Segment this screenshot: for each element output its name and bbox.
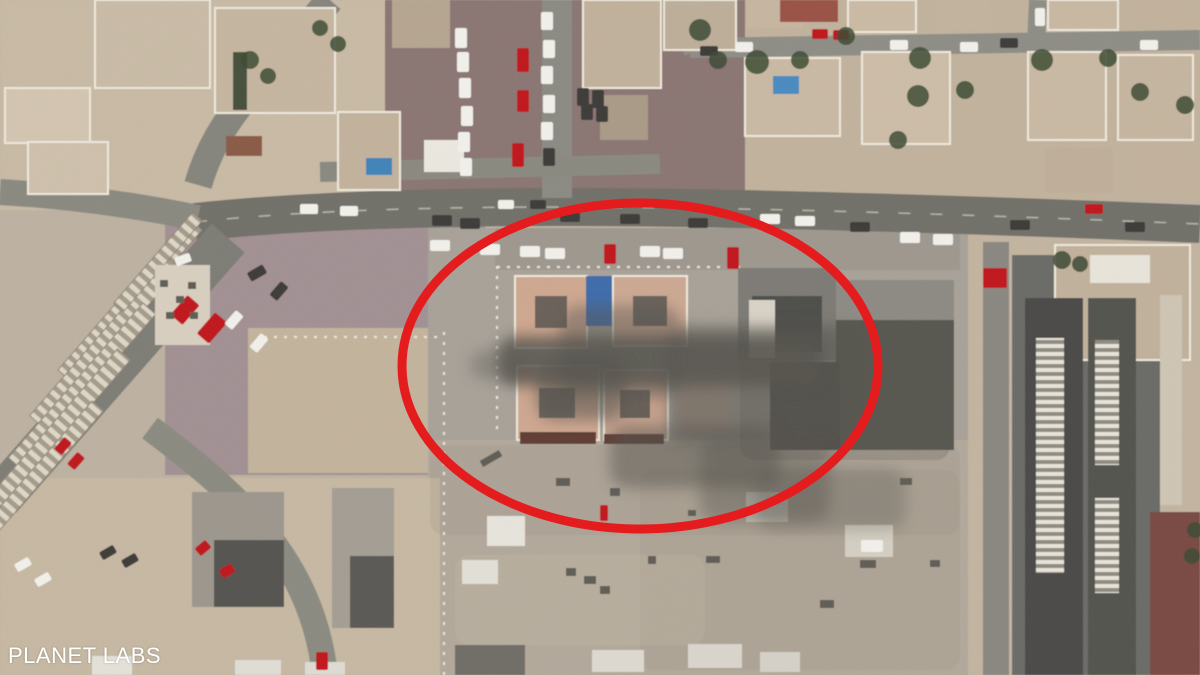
satellite-scene: [0, 0, 1200, 675]
film-grain-overlay: [0, 0, 1200, 675]
satellite-image: PLANET LABS: [0, 0, 1200, 675]
watermark-planet-labs: PLANET LABS: [8, 643, 161, 669]
